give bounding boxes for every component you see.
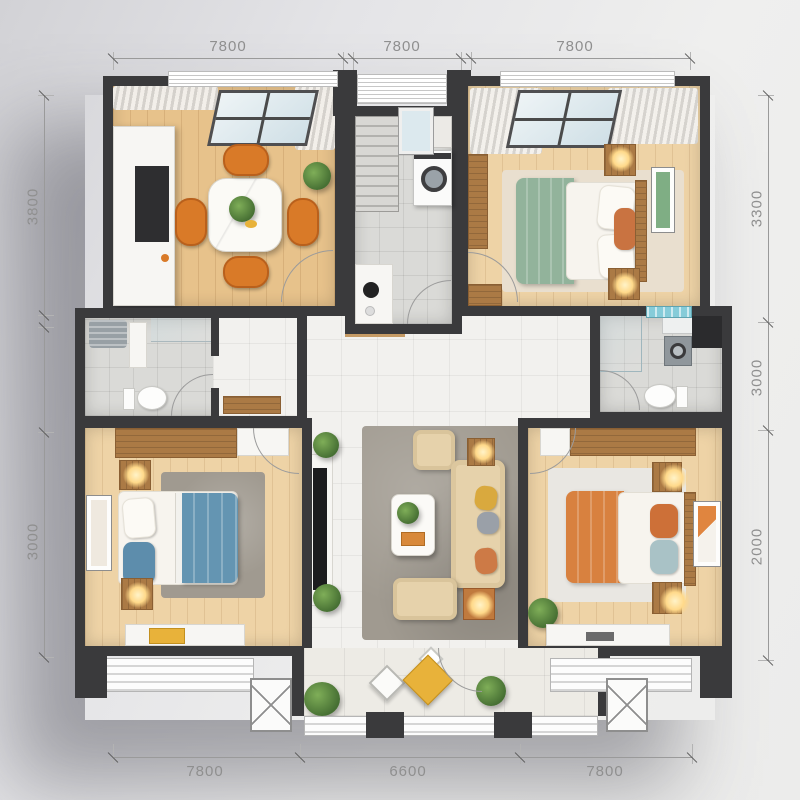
toilet <box>137 386 167 410</box>
long-desk <box>115 428 237 458</box>
dim-left-1: 3800 <box>25 185 42 229</box>
wall-art <box>652 168 674 232</box>
window-sill-left <box>106 658 254 692</box>
shower-glass <box>151 318 215 342</box>
floor-tray <box>369 665 406 702</box>
dim-right-3: 2000 <box>749 525 766 569</box>
bedroom-window-blinds <box>500 71 675 87</box>
toilet-tank <box>123 388 135 410</box>
coffee-table-plant <box>397 502 419 524</box>
corner-pier <box>75 650 107 698</box>
corner-pier <box>700 650 732 698</box>
dim-line-left <box>44 95 45 658</box>
dim-top-3: 7800 <box>545 38 605 55</box>
window-pier <box>494 712 532 738</box>
dining-window-blinds <box>168 71 338 87</box>
x-pattern-window <box>250 678 292 732</box>
floor-plan-canvas: 7800 7800 7800 7800 6600 7800 3800 3000 … <box>0 0 800 800</box>
door-arc <box>600 370 640 410</box>
toilet <box>644 384 676 408</box>
dryer <box>664 336 692 366</box>
wardrobe <box>570 428 696 456</box>
dim-ext <box>300 744 301 764</box>
window-pier <box>366 712 404 738</box>
door-arc <box>281 250 333 302</box>
loveseat <box>393 578 457 620</box>
toilet-tank <box>676 386 688 408</box>
dining-chair <box>223 256 269 288</box>
curtain <box>608 88 698 144</box>
dim-right-2: 3000 <box>749 356 766 400</box>
shower-glass <box>600 316 642 372</box>
duvet-orange <box>566 491 624 583</box>
door-arc <box>407 280 451 324</box>
dining-room <box>103 76 345 316</box>
pillow-orange <box>650 504 678 538</box>
pillow-orange <box>474 547 499 575</box>
bedside-lamp <box>612 272 638 298</box>
dim-bottom-1: 7800 <box>175 763 235 780</box>
dim-line-right <box>768 95 769 660</box>
bathroom-left <box>75 308 307 426</box>
window-bench <box>125 624 245 646</box>
stair-ledge <box>357 74 447 104</box>
bathroom-shelf <box>129 322 147 368</box>
staircase <box>355 116 399 212</box>
wardrobe <box>468 154 488 249</box>
bowl <box>245 220 257 228</box>
partition-wall <box>211 388 219 416</box>
partition-wall <box>211 318 219 356</box>
plant <box>313 584 341 612</box>
bathroom-right <box>590 306 732 422</box>
dining-chair <box>223 144 269 176</box>
wall-art <box>694 502 720 566</box>
sideboard-panel <box>135 166 169 242</box>
yellow-mat <box>149 628 185 644</box>
decor-item <box>161 254 169 262</box>
skylight-window <box>207 90 319 146</box>
washing-machine <box>413 150 452 206</box>
curtain <box>113 86 218 110</box>
door-arc <box>171 374 213 416</box>
dim-line-bottom <box>113 757 692 758</box>
armchair <box>413 430 455 470</box>
pillow-blue-gray <box>650 540 678 574</box>
bathroom-shelf <box>662 316 696 334</box>
dim-top-1: 7800 <box>198 38 258 55</box>
pillow-orange-accent <box>614 208 636 250</box>
table-lamp <box>466 591 494 619</box>
bedroom-orange <box>518 418 732 656</box>
plant <box>313 432 339 458</box>
bench-mat <box>586 632 614 641</box>
laundry-window <box>399 108 433 154</box>
pillow-gray <box>477 512 499 534</box>
dim-line-top <box>113 58 690 59</box>
storage-box <box>692 316 722 348</box>
balcony-window-band <box>304 716 598 736</box>
corner-plant <box>303 162 331 190</box>
bathroom-window <box>646 306 692 318</box>
dim-ext <box>520 744 521 764</box>
dim-ext <box>113 744 114 764</box>
duvet-blue <box>181 493 238 583</box>
x-pattern-window <box>606 678 648 732</box>
sheet-fold <box>175 493 182 583</box>
bedside-lamp <box>660 464 688 492</box>
table-plant <box>229 196 255 222</box>
table-lamp <box>471 440 495 464</box>
tray <box>401 532 425 546</box>
entry-cabinet <box>223 396 281 414</box>
tv <box>313 468 327 590</box>
dryer-door <box>670 343 686 359</box>
dim-bottom-3: 7800 <box>575 763 635 780</box>
door-arc <box>253 428 299 474</box>
dim-left-2: 3000 <box>25 520 42 564</box>
bedside-lamp <box>608 146 634 172</box>
bedroom-blue <box>75 418 312 656</box>
dim-bottom-2: 6600 <box>378 763 438 780</box>
pillow-white <box>121 497 156 540</box>
balcony-plant <box>304 682 340 716</box>
ac-unit <box>89 320 127 348</box>
bedside-lamp <box>660 586 690 616</box>
dining-chair <box>287 198 319 246</box>
kettle <box>363 282 379 298</box>
dim-ext <box>692 744 693 764</box>
wall-art <box>87 496 111 570</box>
dim-top-2: 7800 <box>372 38 432 55</box>
bedside-lamp <box>123 462 149 488</box>
dining-chair <box>175 198 207 246</box>
headboard <box>635 180 647 282</box>
skylight-window <box>506 90 622 148</box>
cup <box>365 306 375 316</box>
dim-right-1: 3300 <box>749 187 766 231</box>
bedroom-green <box>458 76 710 316</box>
washer-door <box>421 166 447 192</box>
bedside-lamp <box>125 582 151 608</box>
